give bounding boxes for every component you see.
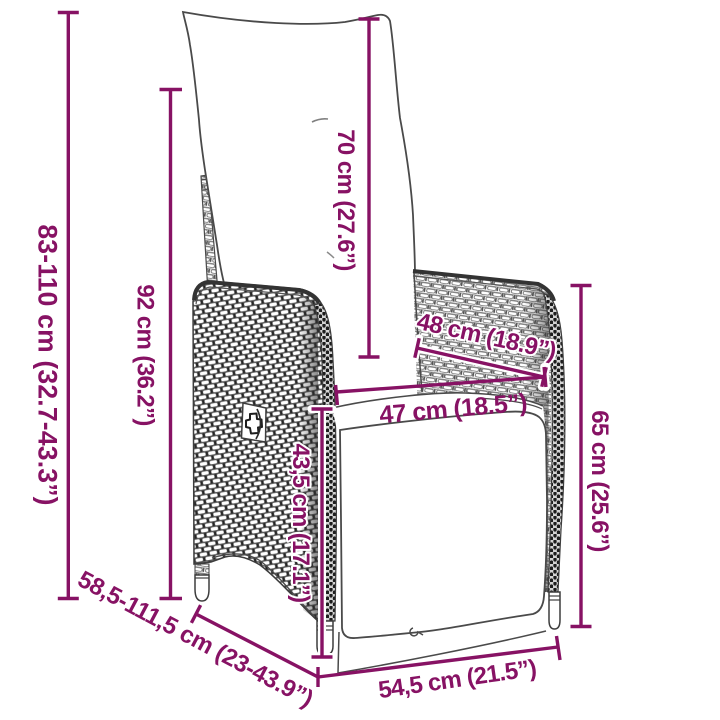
svg-text:83-110 cm (32.7-43.3”): 83-110 cm (32.7-43.3”) xyxy=(33,224,63,505)
svg-text:43,5 cm (17.1”): 43,5 cm (17.1”) xyxy=(287,444,314,603)
svg-text:65 cm (25.6”): 65 cm (25.6”) xyxy=(586,410,613,552)
svg-text:70 cm (27.6”): 70 cm (27.6”) xyxy=(332,129,359,271)
svg-text:92 cm (36.2”): 92 cm (36.2”) xyxy=(132,284,159,426)
